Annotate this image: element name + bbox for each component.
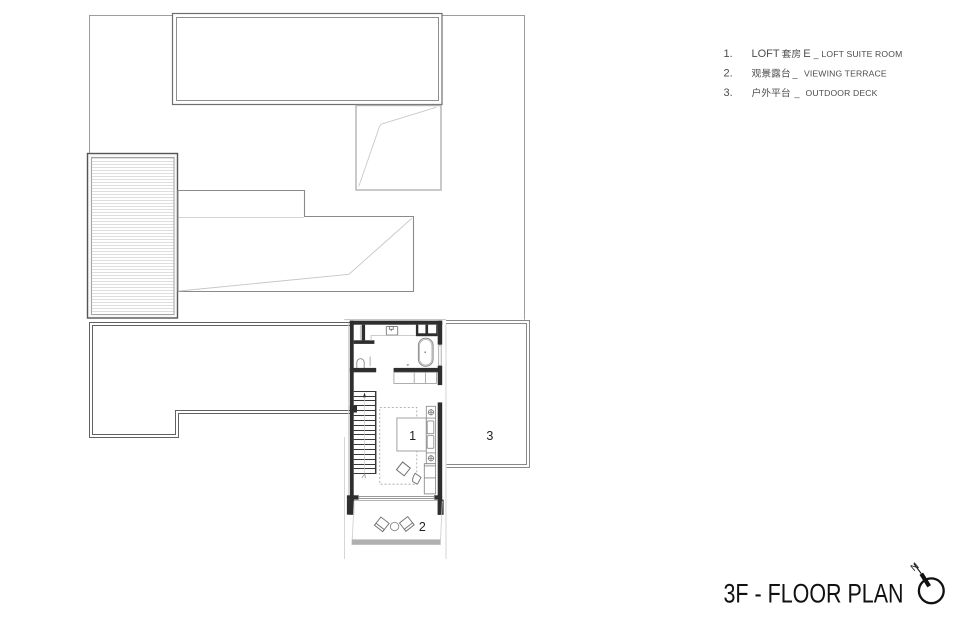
- svg-text:_: _: [792, 69, 799, 79]
- svg-text:3: 3: [486, 429, 493, 443]
- svg-text:1.: 1.: [724, 48, 733, 60]
- svg-text:3F - FLOOR PLAN: 3F - FLOOR PLAN: [724, 579, 904, 609]
- svg-text:LOFT SUITE ROOM: LOFT SUITE ROOM: [822, 49, 903, 59]
- svg-text:LOFT: LOFT: [752, 48, 780, 60]
- svg-text:3.: 3.: [724, 87, 733, 99]
- svg-text:E: E: [803, 48, 810, 60]
- svg-text:2.: 2.: [724, 68, 733, 80]
- svg-text:_: _: [794, 88, 801, 98]
- svg-text:2: 2: [419, 520, 426, 534]
- svg-text:VIEWING TERRACE: VIEWING TERRACE: [804, 69, 887, 79]
- svg-text:OUTDOOR DECK: OUTDOOR DECK: [806, 88, 878, 98]
- svg-text:_: _: [813, 49, 820, 59]
- svg-text:1: 1: [409, 429, 416, 443]
